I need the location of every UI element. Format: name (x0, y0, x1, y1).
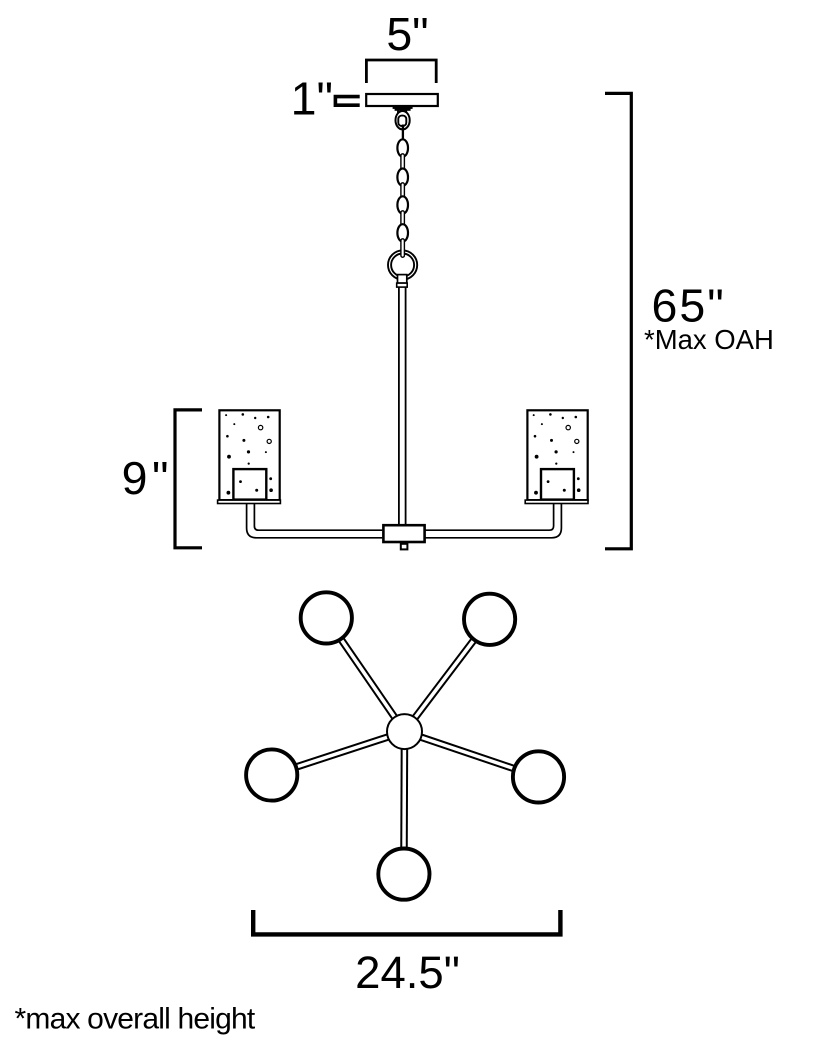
svg-text:5": 5" (386, 8, 428, 60)
svg-text:1": 1" (291, 73, 333, 125)
svg-text:*Max OAH: *Max OAH (644, 324, 774, 355)
svg-text:*max overall height: *max overall height (15, 1002, 256, 1035)
svg-text:24.5": 24.5" (355, 947, 460, 998)
svg-text:9": 9" (122, 452, 173, 504)
